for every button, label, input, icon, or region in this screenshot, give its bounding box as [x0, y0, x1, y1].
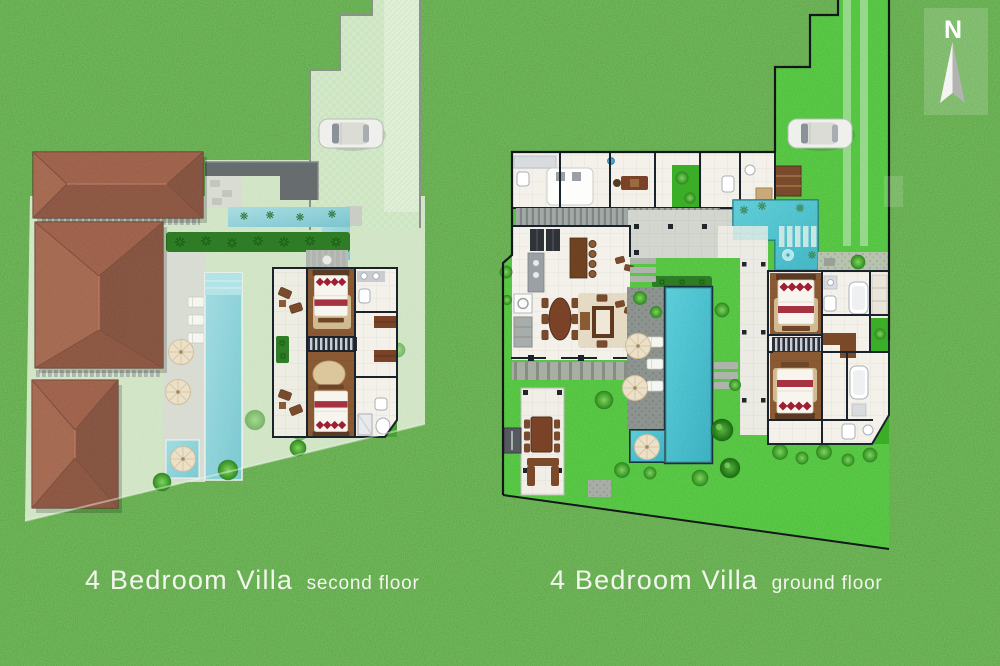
umbrella-icon [626, 334, 651, 359]
compass: N [924, 8, 988, 115]
coffee-table [580, 312, 590, 330]
second-floor-interior [273, 268, 397, 437]
bedroom-wing [768, 271, 889, 444]
umbrella-icon [166, 380, 191, 405]
gazebo-dining [524, 417, 560, 452]
gazebo [521, 388, 564, 495]
staircase-upper [307, 337, 357, 351]
umbrella-icon [169, 340, 194, 365]
car-icon-right [787, 119, 855, 151]
fence-pad [884, 176, 903, 207]
bedroom-2-upper [307, 351, 355, 437]
bathroom-ground-2 [850, 366, 868, 416]
caption-right-title: 4 Bedroom Villa [550, 565, 758, 595]
garden-stone-path [512, 362, 628, 380]
umbrella-icon [171, 447, 196, 472]
balcony [273, 268, 307, 437]
toilet [722, 176, 734, 192]
site-plan-image: N 4 Bedroom Villa second floor 4 Bedroom… [0, 0, 1000, 666]
entry-court-left [205, 176, 242, 208]
umbrella-icon [635, 435, 660, 460]
bedroom-2-ground [770, 352, 822, 420]
north-label: N [944, 16, 962, 44]
car-icon-left [318, 119, 386, 151]
courtyard-strip [672, 165, 700, 208]
balcony-planter [276, 336, 289, 363]
toilet [842, 424, 855, 439]
dining-set [542, 298, 578, 340]
pantry-counter [547, 168, 593, 205]
laundry [514, 294, 532, 347]
bedroom-1-ground [770, 273, 822, 335]
caption-right-subtitle: ground floor [772, 573, 883, 594]
entrance-gate [774, 166, 801, 196]
caption-left-subtitle: second floor [307, 573, 420, 594]
stone-pad [588, 480, 611, 497]
umbrella-icon [623, 376, 648, 401]
caption-left-title: 4 Bedroom Villa [85, 565, 293, 595]
closet-ground [872, 275, 887, 315]
hedge [166, 232, 350, 252]
toilet [824, 296, 836, 311]
bedroom-1-upper [307, 268, 355, 338]
toilet [517, 172, 529, 186]
